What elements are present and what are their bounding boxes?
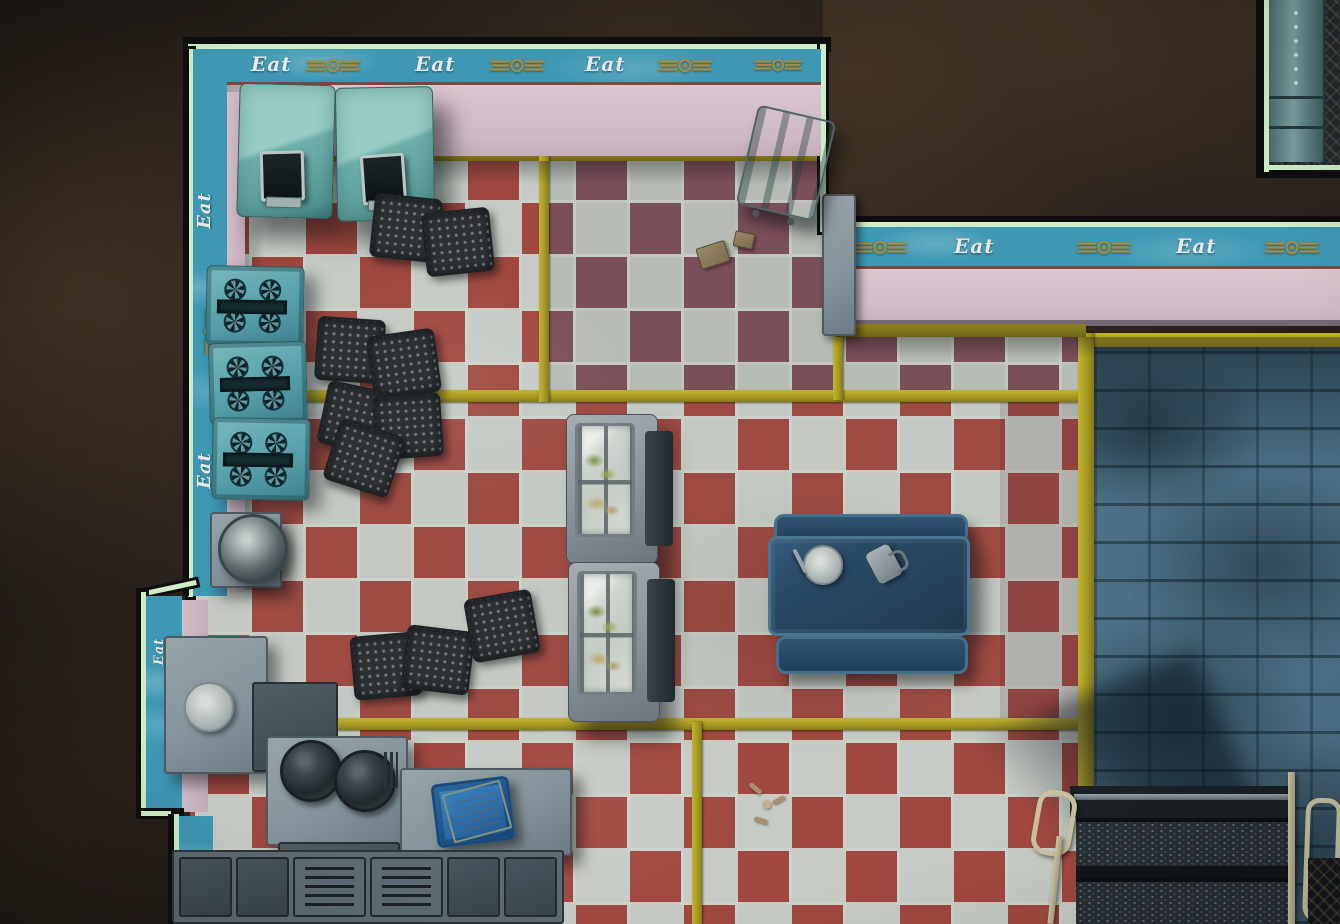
eat-sign-text: Eat	[1176, 234, 1216, 258]
eat-sign-text: Eat	[585, 52, 625, 76]
vault-gear-icon	[305, 57, 361, 74]
cabinet-vent	[293, 857, 366, 917]
railing-post	[1288, 772, 1295, 924]
fan-icon	[258, 311, 280, 333]
wall2-pink	[836, 269, 1340, 326]
wall-banner-top: Eat Eat Eat	[193, 49, 821, 82]
fridge-side-flap	[645, 431, 673, 546]
wall2-corner-column	[822, 194, 856, 336]
fan-icon	[264, 465, 286, 487]
fridge-food	[580, 574, 634, 692]
grid-line-vertical-stub	[833, 330, 843, 400]
fridge-glass	[575, 423, 635, 537]
wall-outline-left	[183, 46, 189, 596]
cabinet-door	[447, 857, 500, 917]
wall2-banner: Eat Eat	[836, 227, 1340, 268]
stairs-nosing	[1074, 794, 1290, 800]
waffle-grate[interactable]	[421, 207, 495, 278]
duct-seam	[1269, 126, 1323, 129]
display-fridge[interactable]	[568, 562, 660, 722]
kitchen-cabinets[interactable]	[172, 850, 564, 924]
vault-gear-icon	[657, 57, 713, 74]
stove-burner	[280, 740, 342, 802]
grid-line-vertical-1	[539, 156, 549, 402]
fan-icon	[224, 278, 246, 300]
duct-rivets	[1293, 6, 1299, 92]
cabinet-door	[179, 857, 232, 917]
fan-icon	[227, 389, 250, 412]
vault-gear-icon	[1264, 239, 1320, 256]
plate[interactable]	[803, 545, 843, 585]
cabinet-door	[236, 857, 289, 917]
cooler-vent-slot	[220, 376, 290, 392]
corner-room-edge-bottom	[1264, 165, 1340, 170]
vault-gear-icon	[489, 57, 545, 74]
fan-icon	[262, 388, 285, 411]
display-fridge[interactable]	[566, 414, 658, 564]
corner-room-edge-left	[1264, 0, 1269, 172]
waffle-grate[interactable]	[463, 589, 541, 664]
supply-crate[interactable]	[430, 775, 515, 848]
vending-machine[interactable]	[236, 83, 335, 219]
fan-icon	[259, 279, 281, 301]
kitchen-plate[interactable]	[184, 682, 234, 732]
grid-line-vertical-2	[692, 722, 702, 924]
eat-sign-text: Eat	[251, 52, 291, 76]
stove-vents	[384, 752, 398, 788]
floor-tint-right	[1000, 393, 1085, 724]
fan-icon	[229, 464, 251, 486]
vent-duct[interactable]	[1269, 0, 1325, 162]
stairs[interactable]	[1076, 878, 1288, 924]
pitcher-handle	[888, 547, 912, 573]
fridge-glass	[577, 571, 637, 695]
vault-gear-icon	[1076, 239, 1132, 256]
cooler-vent-slot	[217, 299, 287, 314]
fridge-food	[578, 426, 632, 534]
diner-table[interactable]	[768, 536, 970, 636]
bench[interactable]	[776, 636, 968, 674]
vending-tray	[266, 196, 302, 208]
food-scraps[interactable]	[762, 800, 771, 809]
baseboard-wall2	[836, 324, 1086, 337]
fridge-side-flap	[647, 579, 675, 702]
pitcher[interactable]	[865, 543, 904, 585]
stairs-landing	[1070, 786, 1294, 818]
fan-icon	[265, 432, 287, 454]
eat-sign-text: Eat	[415, 52, 455, 76]
vault-gear-icon	[852, 239, 908, 256]
cooler-unit[interactable]	[208, 341, 308, 426]
cabinet-door	[504, 857, 557, 917]
grid-line-horizontal-2	[254, 718, 1086, 730]
eat-sign-text: Eat	[954, 234, 994, 258]
waffle-grate[interactable]	[400, 624, 475, 696]
fan-icon	[261, 355, 284, 378]
floor-grate-corner	[1308, 858, 1340, 924]
cabinet-vent	[370, 857, 443, 917]
cargo-box[interactable]	[442, 780, 513, 844]
fan-icon	[226, 356, 249, 379]
cooler-vent-slot	[223, 452, 293, 467]
vault-gear-icon	[753, 57, 803, 73]
cooler-unit[interactable]	[211, 417, 310, 501]
vault-diner-battle-map: Eat Eat Eat Eat Eat Eat Eat Eat	[0, 0, 1340, 924]
eat-sign-text: Eat	[194, 192, 215, 229]
duct-seam	[1269, 96, 1323, 99]
patio-frame-top	[1078, 333, 1340, 347]
trash-can[interactable]	[218, 514, 288, 584]
vending-dispenser-panel	[260, 150, 305, 201]
stove[interactable]	[266, 736, 408, 846]
fan-icon	[223, 310, 245, 332]
fan-icon	[230, 431, 252, 453]
cooler-unit[interactable]	[205, 265, 304, 347]
